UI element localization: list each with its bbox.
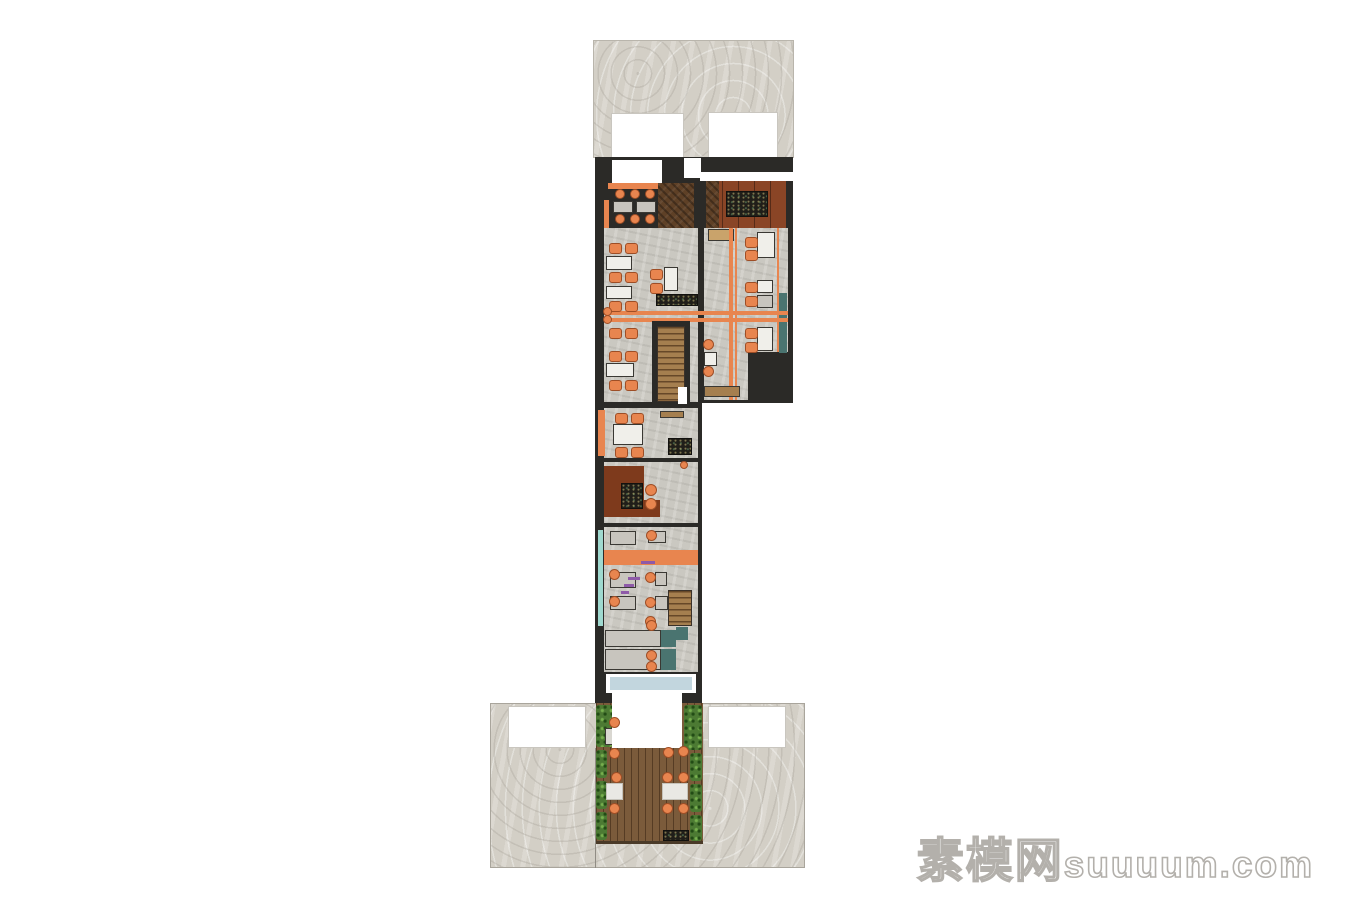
watermark: 素模网suuuum.com — [917, 837, 1314, 884]
roomC-chair — [625, 380, 638, 391]
roomH-stool — [646, 650, 657, 661]
roomG-table — [610, 531, 636, 545]
roomC-chair — [609, 328, 622, 339]
kitchen-stool — [680, 461, 688, 469]
terrace-stool — [663, 747, 674, 758]
roomG-stool — [609, 569, 620, 580]
roomC-chair — [609, 351, 622, 362]
floor-plan — [0, 0, 1356, 900]
upper-opening-right — [708, 112, 778, 162]
roomG-stool — [646, 530, 657, 541]
roomC-table — [664, 267, 678, 291]
roomH-stool — [646, 620, 657, 631]
roomA-wood-floor — [658, 183, 694, 230]
roomD-stool — [703, 339, 714, 350]
stair-main-door — [678, 387, 687, 404]
roomA-table — [636, 201, 656, 213]
roomE-chair — [615, 413, 628, 424]
roomD-wood-bench — [704, 386, 740, 397]
roomH-teal-top — [661, 630, 676, 647]
roomE-bench-orange — [598, 410, 605, 456]
lower-opening-right — [708, 706, 786, 748]
roomC-chair — [625, 351, 638, 362]
roomC-table — [606, 256, 632, 270]
kitchen-burner — [645, 498, 657, 510]
roomA-stool — [645, 189, 655, 199]
roomG-stool — [645, 572, 656, 583]
roomC-chair — [625, 301, 638, 312]
roomC-chair — [625, 243, 638, 254]
roomB-beam-white — [700, 172, 793, 181]
terrace-deck-edge — [596, 841, 703, 844]
roomE-chair — [631, 413, 644, 424]
roomD-dark-corner — [748, 352, 788, 400]
watermark-brand: 素模网 — [917, 834, 1064, 887]
roomA-table — [613, 201, 633, 213]
terrace-stool — [662, 772, 673, 783]
roomA-stool — [630, 214, 640, 224]
roomA-stool — [645, 214, 655, 224]
entrance-glass — [610, 677, 692, 690]
roomA-wall-notch — [684, 158, 701, 178]
roomC-chair — [609, 380, 622, 391]
roomD-chair — [745, 237, 758, 248]
upper-opening-left — [611, 113, 684, 163]
roomC-chair — [609, 243, 622, 254]
terrace-stool — [609, 717, 620, 728]
roomD-chair — [745, 282, 758, 293]
roomD-table — [704, 352, 717, 366]
roomA-entry-white — [612, 160, 662, 185]
kitchen-island — [621, 483, 643, 509]
watermark-site: suuuum.com — [1064, 844, 1314, 885]
roomD-teal-panel — [779, 293, 787, 353]
terrace-hedge — [596, 750, 607, 778]
terrace-hedge — [596, 812, 607, 840]
roomB-wood-column — [706, 181, 719, 231]
stair-rear-treads — [668, 590, 692, 626]
roomG-decor-mark — [624, 584, 634, 587]
roomC-counter — [656, 294, 698, 306]
roomG-table — [655, 572, 667, 586]
roomG-stool — [645, 597, 656, 608]
terrace-grill — [663, 830, 689, 841]
roomD-chair — [745, 250, 758, 261]
terrace-table — [662, 783, 688, 800]
roomG-decor-mark — [621, 591, 629, 594]
roomE-chair — [631, 447, 644, 458]
roomG-decor-mark — [641, 561, 655, 564]
terrace-table — [606, 783, 623, 800]
roomA-stool — [615, 214, 625, 224]
terrace-hedge — [690, 815, 702, 841]
roomG-decor-mark — [628, 577, 640, 580]
roomE-counter — [668, 438, 692, 455]
kitchen-burner — [645, 484, 657, 496]
terrace-stool — [678, 772, 689, 783]
roomD-stool — [703, 366, 714, 377]
terrace-stool — [609, 748, 620, 759]
roomG-table — [655, 596, 668, 610]
roomC-chair — [625, 328, 638, 339]
roomD-chair — [745, 342, 758, 353]
terrace-stool — [678, 746, 689, 757]
roomD-chair — [745, 296, 758, 307]
roomC-chair — [650, 283, 663, 294]
roomA-stool — [615, 189, 625, 199]
terrace-stool — [609, 803, 620, 814]
lower-opening-left — [508, 706, 586, 748]
roomE-wood-shelf — [660, 411, 684, 418]
roomD-table — [757, 280, 773, 293]
roomC-chair — [609, 272, 622, 283]
roomC-bench-stool — [603, 315, 612, 324]
roomD-chair — [745, 328, 758, 339]
roomH-stool — [646, 661, 657, 672]
roomC-table — [606, 363, 634, 377]
roomG-teal-accent — [676, 627, 688, 640]
roomH-teal-top — [661, 649, 676, 670]
roomG-teal-ledge — [598, 530, 603, 626]
roomH-counter — [605, 630, 661, 647]
terrace-hedge — [690, 753, 702, 781]
roomC-chair — [625, 272, 638, 283]
roomA-side-bench — [604, 200, 609, 228]
roomG-stool — [609, 596, 620, 607]
terrace-stool — [611, 772, 622, 783]
terrace-hedge — [690, 784, 702, 812]
floor-plan-canvas: 素模网suuuum.com — [0, 0, 1356, 900]
roomD-table — [757, 232, 775, 258]
vestibule-canopy — [612, 692, 682, 748]
roomC-chair — [650, 269, 663, 280]
terrace-stool — [662, 803, 673, 814]
roomD-table — [757, 327, 773, 351]
roomE-chair — [615, 447, 628, 458]
terrace-hedge — [684, 705, 702, 750]
dining-bench-stripe-h — [604, 318, 788, 322]
roomA-stool — [630, 189, 640, 199]
roomD-table — [757, 295, 773, 308]
terrace-stool — [678, 803, 689, 814]
roomE-table — [613, 424, 643, 445]
roomB-stone-table — [726, 191, 768, 217]
roomC-table — [606, 286, 632, 299]
